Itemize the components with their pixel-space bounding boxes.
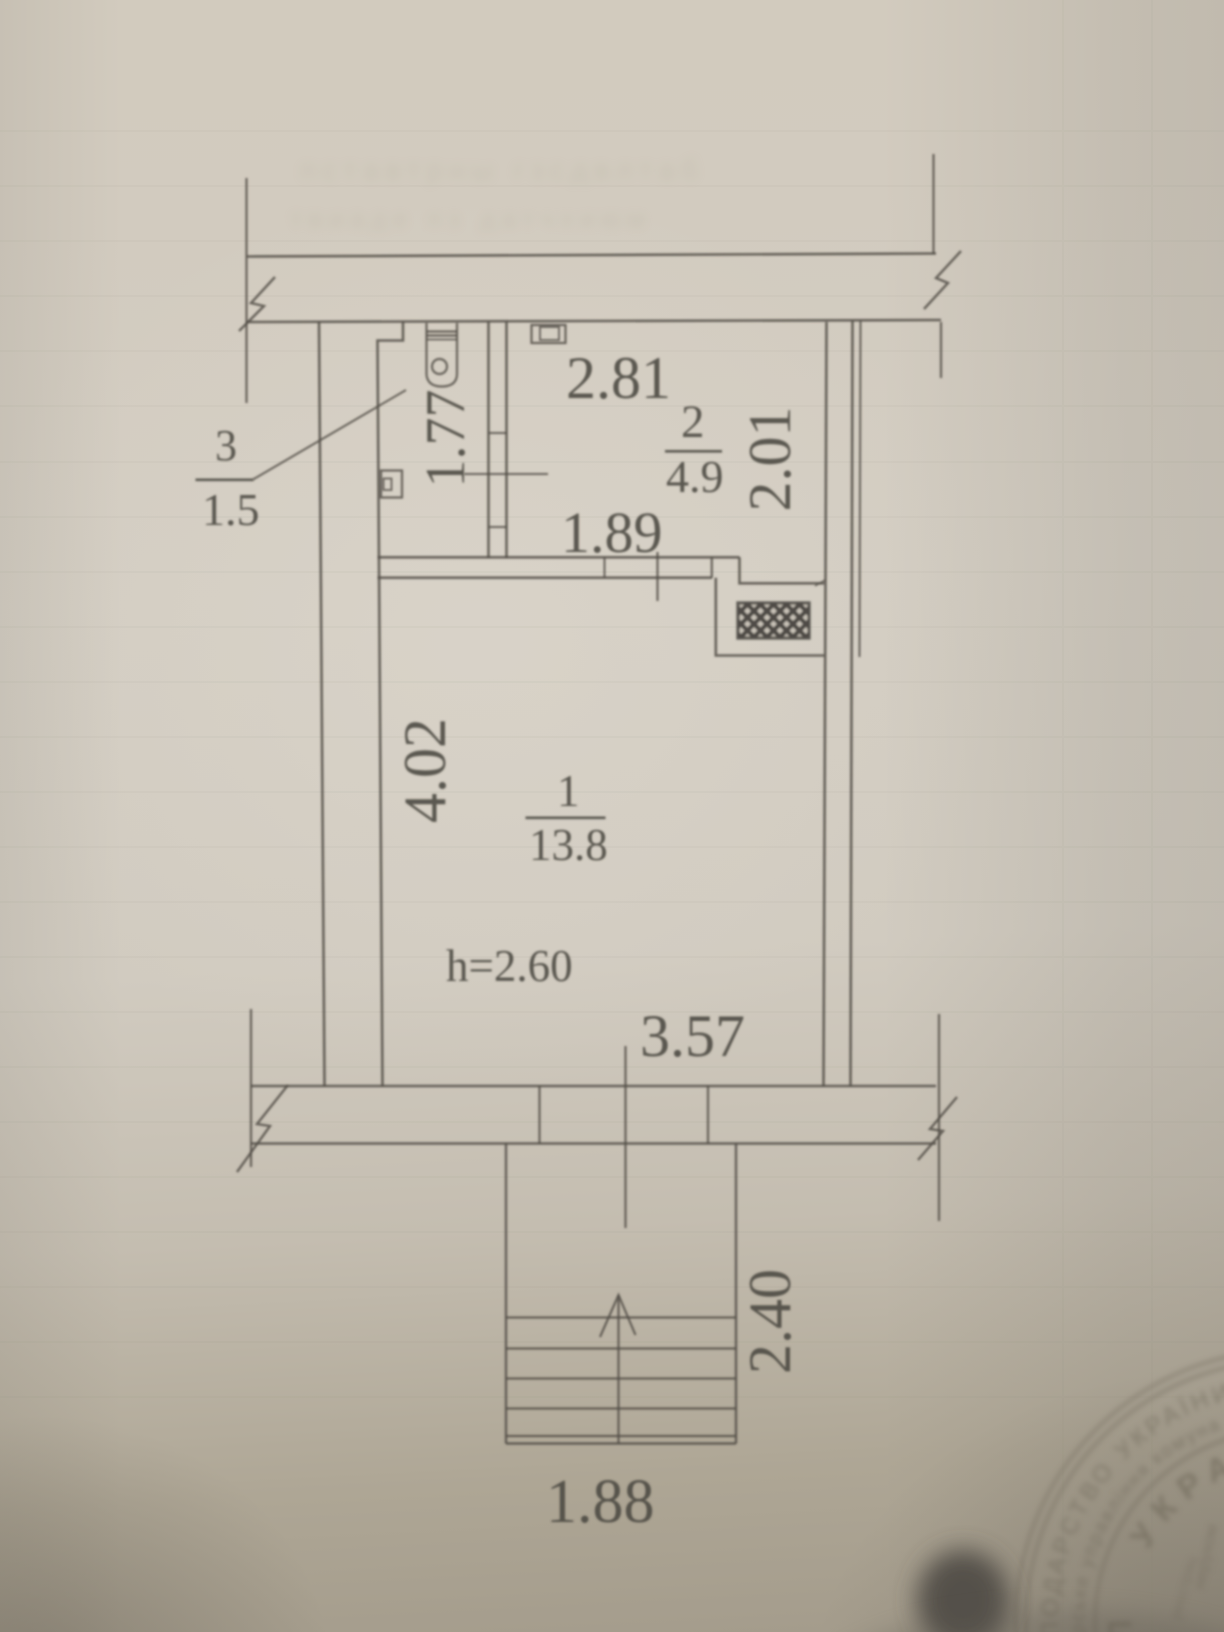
svg-text:твиаде пз датчхиюм: твиаде пз датчхиюм <box>290 204 651 234</box>
svg-text:h=2.60: h=2.60 <box>446 941 573 991</box>
svg-text:4.9: 4.9 <box>666 451 724 502</box>
svg-text:1.88: 1.88 <box>546 1468 655 1536</box>
svg-text:1.89: 1.89 <box>561 500 663 565</box>
svg-text:пставтрны гзсдвлтаб: пставтрны гзсдвлтаб <box>300 154 704 187</box>
svg-text:13.8: 13.8 <box>529 820 608 870</box>
svg-text:2: 2 <box>681 396 705 448</box>
svg-text:2.40: 2.40 <box>737 1269 803 1374</box>
svg-text:1.77: 1.77 <box>415 390 477 488</box>
svg-text:4.02: 4.02 <box>392 718 458 823</box>
svg-text:1.5: 1.5 <box>202 484 260 535</box>
svg-text:1: 1 <box>557 766 580 816</box>
svg-text:2.01: 2.01 <box>737 407 803 512</box>
svg-text:3.57: 3.57 <box>640 1003 745 1069</box>
svg-text:3: 3 <box>215 421 237 470</box>
svg-text:2.81: 2.81 <box>566 345 671 411</box>
